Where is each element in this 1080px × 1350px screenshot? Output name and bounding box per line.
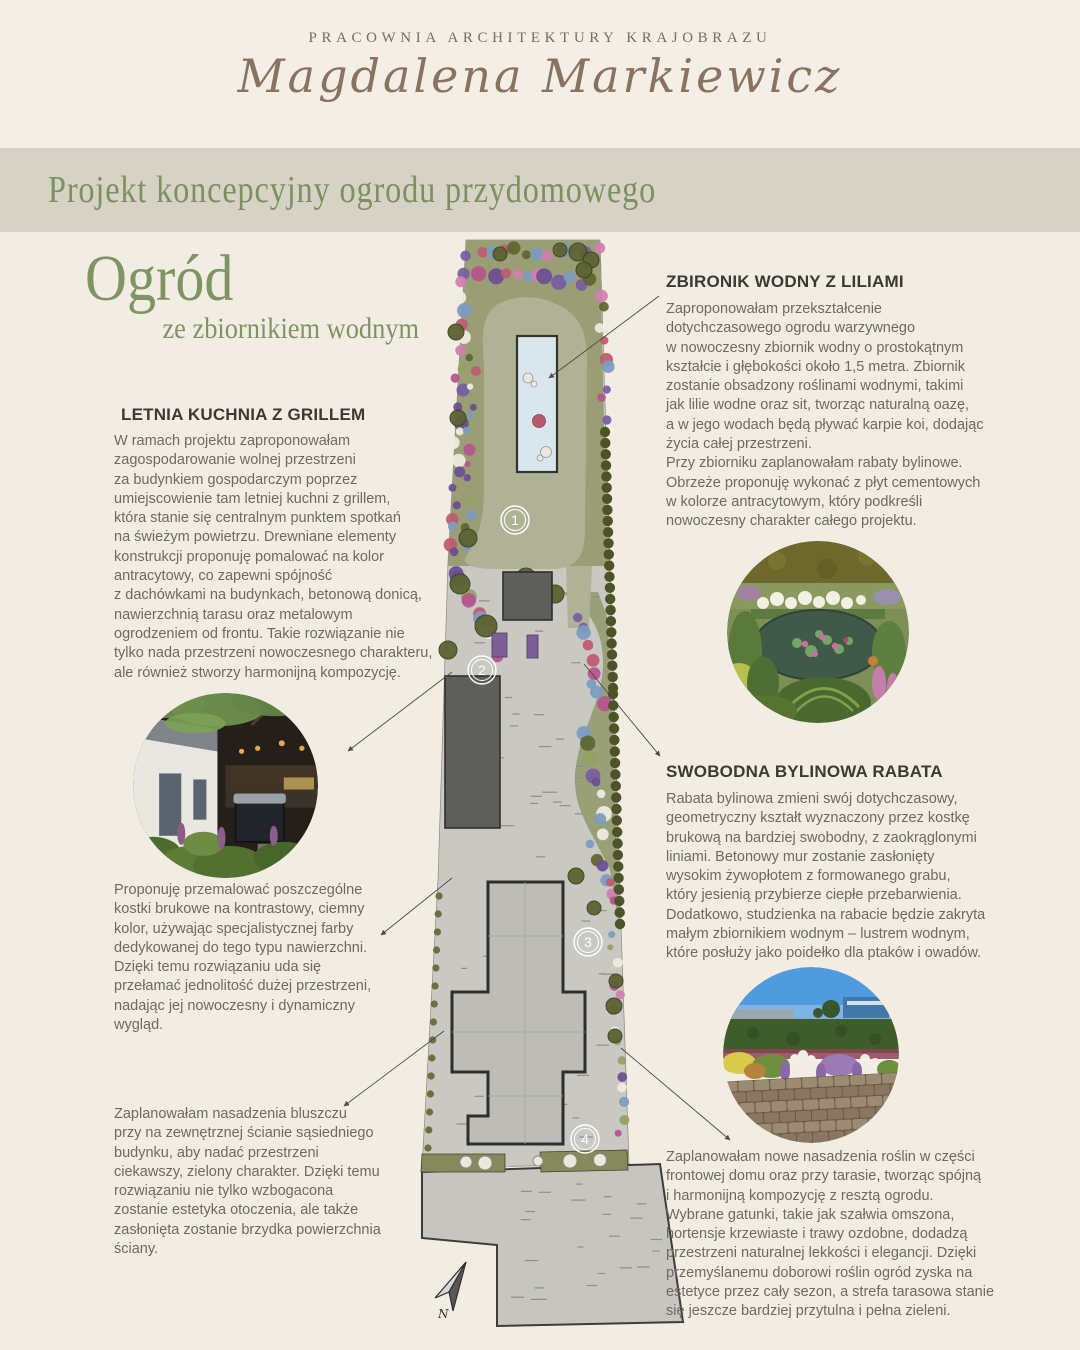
heading-zbiornik-wodny: ZBIRONIK WODNY Z LILIAMI [666, 272, 904, 292]
designer-signature: Magdalena Markiewicz [0, 49, 1080, 103]
garden-plan: 1 2 3 4 N [408, 236, 693, 1328]
north-arrow-icon: N [435, 1262, 466, 1321]
outbuilding-large [445, 676, 500, 828]
photo-summer-kitchen [133, 693, 318, 878]
photo-front-garden [723, 967, 899, 1143]
project-banner: Projekt koncepcyjny ogrodu przydomowego [0, 148, 1080, 232]
text-front-nasadzenia: Zaplanowałam nowe nasadzenia roślin w cz… [666, 1148, 1036, 1322]
garden-plan-svg: 1 2 3 4 N [408, 236, 693, 1328]
planter-2 [527, 635, 538, 658]
text-letnia-kuchnia: W ramach projektu zaproponowałam zagospo… [114, 432, 459, 683]
svg-text:N: N [437, 1307, 449, 1321]
svg-text:4: 4 [581, 1131, 589, 1147]
planter-1 [492, 633, 507, 657]
studio-name: PRACOWNIA ARCHITEKTURY KRAJOBRAZU [0, 30, 1080, 47]
photo-pond-lilies [727, 541, 909, 723]
garden-title-sub: ze zbiornikiem wodnym [162, 312, 419, 346]
svg-text:1: 1 [511, 512, 519, 528]
svg-text:3: 3 [584, 934, 592, 950]
garden-title: Ogród ze zbiornikiem wodnym [85, 246, 419, 346]
text-kostki-brukowe: Proponuję przemalować poszczególne kostk… [114, 881, 444, 1035]
heading-bylinowa-rabata: SWOBODNA BYLINOWA RABATA [666, 762, 943, 782]
driveway [422, 1164, 683, 1326]
project-title: Projekt koncepcyjny ogrodu przydomowego [48, 168, 656, 212]
page-header: PRACOWNIA ARCHITEKTURY KRAJOBRAZU Magdal… [0, 0, 1080, 148]
text-zbiornik-wodny: Zaproponowałam przekształcenie dotychcza… [666, 300, 1026, 532]
text-bluszcz: Zaplanowałam nasadzenia bluszczu przy na… [114, 1105, 444, 1259]
garden-title-main: Ogród [85, 246, 419, 312]
text-bylinowa-rabata: Rabata bylinowa zmieni swój dotychczasow… [666, 790, 1026, 964]
svg-text:2: 2 [478, 662, 486, 678]
heading-letnia-kuchnia: LETNIA KUCHNIA Z GRILLEM [121, 405, 365, 425]
outbuilding-small [503, 572, 552, 620]
